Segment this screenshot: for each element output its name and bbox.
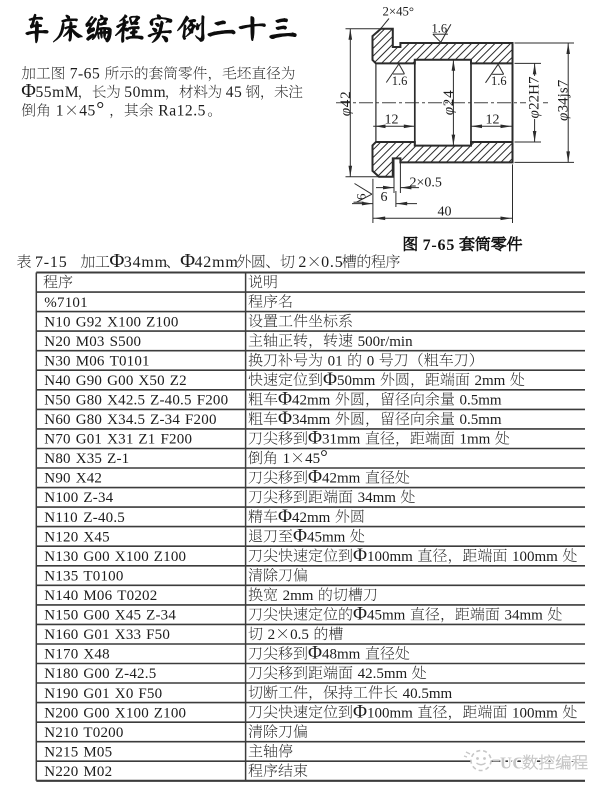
- svg-text:G00: G00: [83, 666, 109, 682]
- svg-text:G01: G01: [76, 432, 102, 448]
- svg-text:Z-34: Z-34: [83, 490, 113, 506]
- svg-text:N140: N140: [44, 588, 78, 604]
- svg-text:22H7: 22H7: [527, 76, 543, 110]
- svg-text:M03: M03: [76, 334, 105, 350]
- svg-text:N60: N60: [44, 412, 70, 428]
- svg-text:1.6: 1.6: [392, 74, 408, 88]
- svg-text:X42.5: X42.5: [107, 393, 145, 409]
- svg-text:Z-34: Z-34: [150, 412, 180, 428]
- svg-text:42: 42: [337, 91, 354, 108]
- svg-text:34mm: 34mm: [292, 412, 331, 428]
- svg-text:40.5mm: 40.5mm: [403, 686, 453, 702]
- svg-text:Z-40.5: Z-40.5: [83, 510, 125, 526]
- svg-text:Φ: Φ: [278, 506, 292, 527]
- svg-text:Z-42.5: Z-42.5: [115, 666, 157, 682]
- svg-text:Φ: Φ: [308, 428, 322, 449]
- svg-text:45mm: 45mm: [307, 529, 346, 545]
- svg-text:N10: N10: [44, 314, 70, 330]
- svg-text:X100: X100: [107, 314, 141, 330]
- svg-text:34mm: 34mm: [124, 254, 168, 271]
- svg-text:2: 2: [268, 627, 276, 643]
- svg-text:°: °: [320, 447, 328, 468]
- svg-text:45: 45: [305, 451, 320, 467]
- svg-text:Φ: Φ: [353, 545, 367, 566]
- svg-text:X48: X48: [83, 647, 109, 663]
- svg-text:G80: G80: [76, 412, 102, 428]
- svg-text:0.5mm: 0.5mm: [460, 393, 502, 409]
- svg-text:T0202: T0202: [117, 588, 157, 604]
- svg-text:N200: N200: [44, 705, 78, 721]
- svg-text:100mm: 100mm: [367, 705, 413, 721]
- svg-text:500r/min: 500r/min: [358, 334, 413, 350]
- svg-text:12: 12: [486, 113, 500, 128]
- svg-text:48mm: 48mm: [322, 647, 361, 663]
- svg-text:N40: N40: [44, 373, 70, 389]
- svg-text:Ra12.5: Ra12.5: [158, 103, 206, 120]
- svg-text:°: °: [96, 99, 104, 121]
- svg-text:F200: F200: [161, 432, 193, 448]
- svg-text:N210: N210: [44, 725, 78, 741]
- svg-text:N110: N110: [44, 510, 78, 526]
- svg-text:Φ: Φ: [308, 467, 322, 488]
- svg-text:2×0.5: 2×0.5: [410, 175, 442, 190]
- svg-text:X100: X100: [115, 705, 149, 721]
- svg-text:Z100: Z100: [154, 549, 186, 565]
- svg-text:34mm: 34mm: [358, 490, 397, 506]
- svg-text:X42: X42: [76, 471, 102, 487]
- svg-text:7-65: 7-65: [70, 66, 101, 83]
- svg-text:42.5mm: 42.5mm: [358, 666, 408, 682]
- svg-text:1mm: 1mm: [460, 432, 491, 448]
- svg-text:2mm: 2mm: [283, 588, 314, 604]
- svg-text:N100: N100: [44, 490, 78, 506]
- svg-text:T0200: T0200: [83, 725, 123, 741]
- svg-text:N80: N80: [44, 451, 70, 467]
- svg-text:55mM: 55mM: [36, 84, 80, 101]
- svg-text:N180: N180: [44, 666, 78, 682]
- svg-text:Φ: Φ: [353, 701, 367, 722]
- svg-text:F200: F200: [185, 412, 217, 428]
- svg-text:G80: G80: [76, 393, 102, 409]
- svg-text:M05: M05: [83, 744, 112, 760]
- svg-text:Z-40.5: Z-40.5: [150, 393, 192, 409]
- svg-text:40: 40: [438, 205, 452, 220]
- svg-text:100mm: 100mm: [512, 705, 558, 721]
- svg-text:31mm: 31mm: [322, 432, 361, 448]
- svg-text:Z-1: Z-1: [107, 451, 129, 467]
- svg-text:T0101: T0101: [110, 353, 150, 369]
- svg-text:Z2: Z2: [170, 373, 187, 389]
- svg-text:X34.5: X34.5: [107, 412, 145, 428]
- svg-text:G90: G90: [76, 373, 102, 389]
- svg-text:2×45°: 2×45°: [383, 5, 415, 19]
- svg-text:X100: X100: [115, 549, 149, 565]
- svg-text:F50: F50: [146, 627, 170, 643]
- svg-text:2mm: 2mm: [475, 373, 506, 389]
- svg-text:X50: X50: [138, 373, 164, 389]
- svg-text:M06: M06: [83, 588, 112, 604]
- svg-text:N160: N160: [44, 627, 78, 643]
- svg-text:50mm: 50mm: [337, 373, 376, 389]
- svg-text:X35: X35: [76, 451, 102, 467]
- svg-text:6: 6: [381, 190, 388, 205]
- svg-text:X45: X45: [83, 529, 109, 545]
- svg-text:Φ: Φ: [353, 604, 367, 625]
- svg-text:1.6: 1.6: [432, 22, 448, 36]
- svg-text:1.6: 1.6: [491, 74, 507, 88]
- svg-text:45: 45: [79, 103, 96, 120]
- svg-text:42mm: 42mm: [195, 254, 239, 271]
- svg-text:Z-34: Z-34: [146, 608, 176, 624]
- svg-text:X33: X33: [115, 627, 141, 643]
- svg-text:Z100: Z100: [146, 314, 178, 330]
- svg-text:45mm: 45mm: [367, 608, 406, 624]
- svg-text:φ: φ: [337, 108, 354, 116]
- svg-text:12: 12: [385, 113, 399, 128]
- svg-text:Φ: Φ: [278, 389, 292, 410]
- svg-text:N135: N135: [44, 569, 78, 585]
- svg-text:Φ: Φ: [21, 80, 36, 102]
- svg-text:N50: N50: [44, 393, 70, 409]
- svg-text:Φ: Φ: [308, 643, 322, 664]
- svg-text:F200: F200: [197, 393, 229, 409]
- svg-text:M06: M06: [76, 353, 105, 369]
- svg-text:N150: N150: [44, 608, 78, 624]
- svg-text:UC: UC: [500, 753, 525, 772]
- svg-text:N215: N215: [44, 744, 78, 760]
- svg-text:N170: N170: [44, 647, 78, 663]
- svg-text:φ: φ: [555, 113, 571, 121]
- svg-text:Φ: Φ: [293, 525, 307, 546]
- svg-text:N90: N90: [44, 471, 70, 487]
- svg-text:Z1: Z1: [138, 432, 155, 448]
- svg-text:S500: S500: [110, 334, 142, 350]
- svg-text:1: 1: [56, 103, 64, 120]
- svg-text:100mm: 100mm: [367, 549, 413, 565]
- svg-text:Φ: Φ: [180, 250, 195, 272]
- svg-text:7-15: 7-15: [35, 254, 68, 271]
- svg-text:1: 1: [283, 451, 291, 467]
- svg-text:0.5: 0.5: [321, 254, 343, 271]
- svg-text:24: 24: [440, 90, 457, 107]
- svg-text:X0: X0: [115, 686, 134, 702]
- svg-text:01: 01: [328, 353, 343, 369]
- svg-text:G00: G00: [83, 549, 109, 565]
- svg-text:φ: φ: [440, 107, 457, 115]
- svg-text:0: 0: [367, 353, 375, 369]
- svg-text:M02: M02: [83, 764, 112, 780]
- svg-text:G00: G00: [83, 608, 109, 624]
- svg-text:0.5mm: 0.5mm: [460, 412, 502, 428]
- svg-text:6: 6: [354, 193, 369, 200]
- svg-text:N130: N130: [44, 549, 78, 565]
- svg-text:42mm: 42mm: [292, 393, 331, 409]
- svg-text:N120: N120: [44, 529, 78, 545]
- svg-text:34mm: 34mm: [505, 608, 544, 624]
- svg-text:G00: G00: [107, 373, 133, 389]
- svg-text:T0100: T0100: [83, 569, 123, 585]
- svg-text:G01: G01: [83, 627, 109, 643]
- svg-text:N20: N20: [44, 334, 70, 350]
- svg-text:Φ: Φ: [323, 369, 337, 390]
- svg-text:50mm: 50mm: [124, 84, 166, 101]
- svg-text:G00: G00: [83, 705, 109, 721]
- svg-text:Z100: Z100: [154, 705, 186, 721]
- svg-text:G92: G92: [76, 314, 102, 330]
- svg-text:φ: φ: [527, 110, 543, 118]
- svg-text:X45: X45: [115, 608, 141, 624]
- svg-text:34js7: 34js7: [555, 79, 571, 112]
- svg-text:2: 2: [298, 254, 307, 271]
- svg-text:N30: N30: [44, 353, 70, 369]
- svg-text:Φ: Φ: [109, 250, 124, 272]
- svg-text:7-65: 7-65: [423, 237, 456, 254]
- svg-text:42mm: 42mm: [322, 471, 361, 487]
- svg-text:%7101: %7101: [44, 295, 88, 311]
- svg-text:F50: F50: [138, 686, 162, 702]
- svg-text:42mm: 42mm: [292, 510, 331, 526]
- svg-text:0.5: 0.5: [290, 627, 309, 643]
- svg-text:N70: N70: [44, 432, 70, 448]
- svg-text:G01: G01: [83, 686, 109, 702]
- svg-text:Φ: Φ: [278, 408, 292, 429]
- svg-text:100mm: 100mm: [512, 549, 558, 565]
- svg-text:X31: X31: [107, 432, 133, 448]
- svg-text:N190: N190: [44, 686, 78, 702]
- svg-text:45: 45: [226, 84, 243, 101]
- svg-text:N220: N220: [44, 764, 78, 780]
